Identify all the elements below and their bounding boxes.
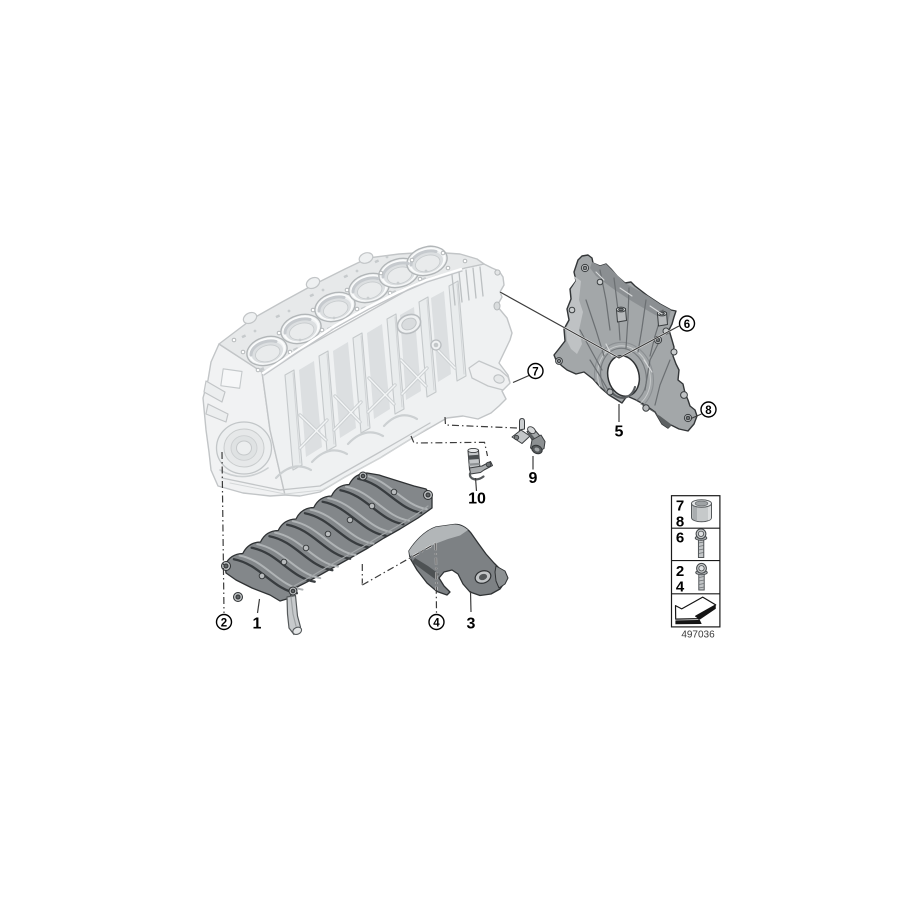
- svg-text:497036: 497036: [681, 630, 715, 641]
- svg-text:6: 6: [684, 319, 690, 331]
- svg-text:8: 8: [705, 405, 712, 417]
- svg-text:10: 10: [468, 490, 486, 507]
- svg-text:1: 1: [253, 615, 262, 632]
- svg-text:7: 7: [676, 498, 684, 515]
- svg-text:7: 7: [532, 366, 538, 378]
- svg-text:4: 4: [676, 579, 685, 596]
- svg-text:9: 9: [529, 470, 538, 487]
- svg-text:2: 2: [221, 617, 227, 629]
- svg-text:4: 4: [433, 617, 440, 629]
- svg-text:3: 3: [467, 615, 476, 632]
- svg-text:2: 2: [676, 563, 684, 580]
- svg-text:8: 8: [676, 514, 684, 531]
- svg-text:5: 5: [615, 423, 624, 440]
- svg-text:6: 6: [676, 530, 684, 547]
